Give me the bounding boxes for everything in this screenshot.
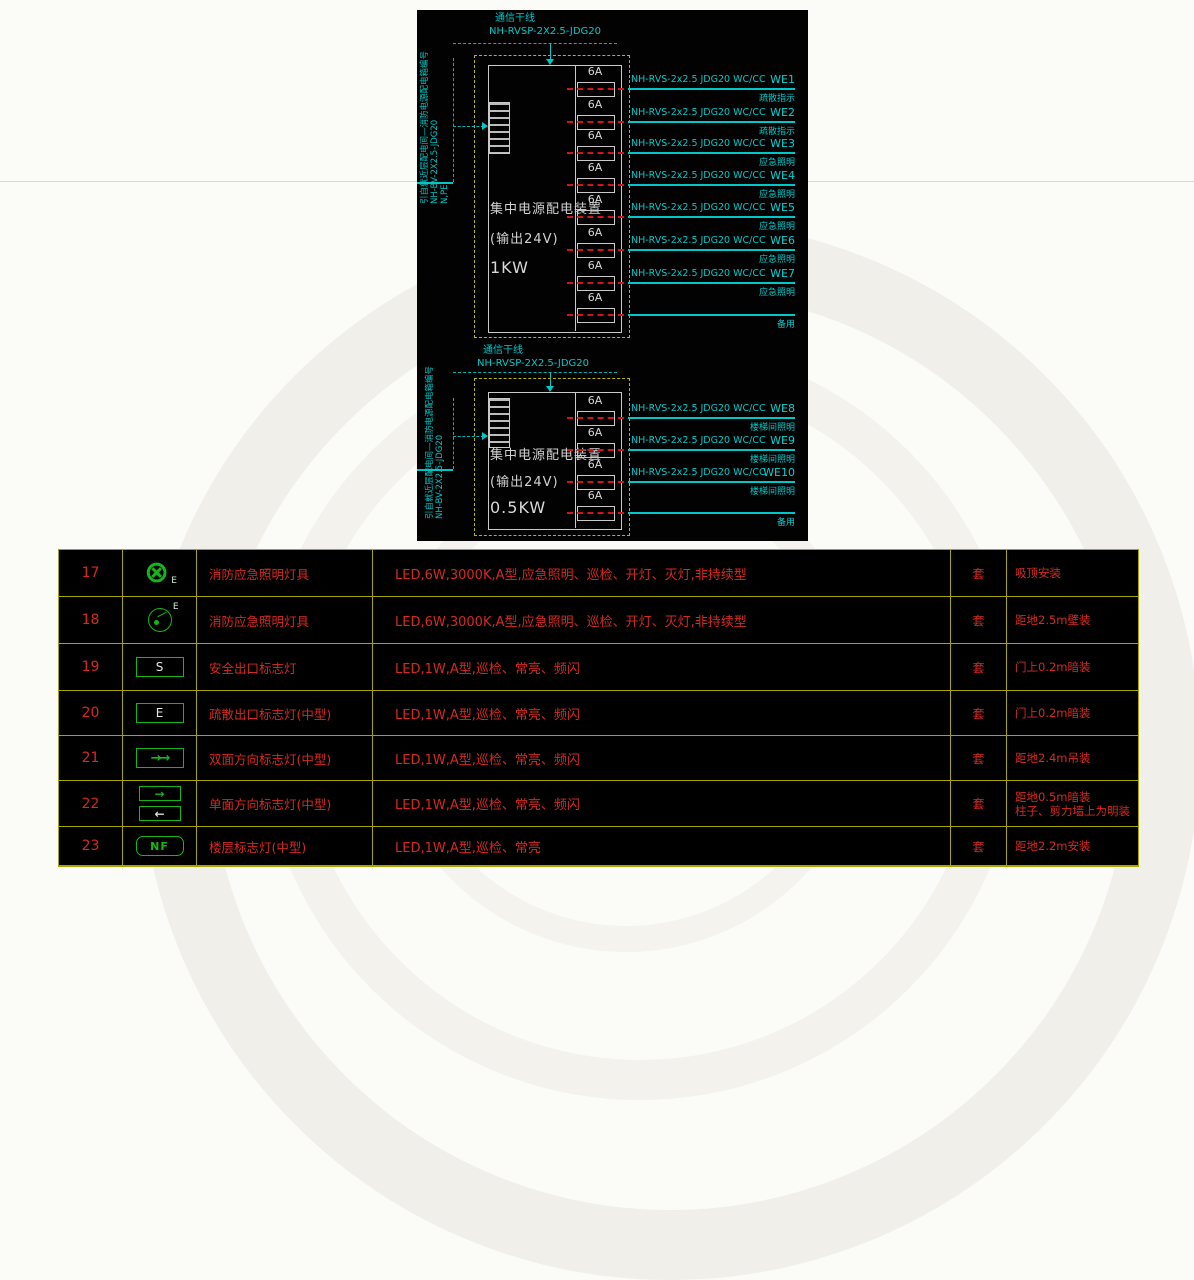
breaker-rating-label: 6A xyxy=(575,129,615,142)
wall-fire-emergency-light-icon-part xyxy=(154,620,159,625)
circuit-wire xyxy=(628,152,795,154)
circuit-wire xyxy=(628,481,795,483)
single-sided-direction-sign-icon-arrow: ← xyxy=(154,809,164,819)
comm-trunk-line xyxy=(453,372,617,373)
single-sided-direction-sign-icon-box: → xyxy=(139,786,181,801)
installation-note: 距地2.5m壁装 xyxy=(1007,597,1136,643)
breaker-rating-label: 6A xyxy=(575,193,615,206)
installation-note: 吸顶安装 xyxy=(1007,550,1136,596)
fixture-spec: LED,1W,A型,巡检、常亮、频闪 xyxy=(373,691,951,735)
fixture-name: 楼层标志灯(中型) xyxy=(197,827,373,865)
row-number: 20 xyxy=(59,691,123,735)
breaker-rating-label: 6A xyxy=(575,394,615,407)
legend-row: 22 →← 单面方向标志灯(中型) LED,1W,A型,巡检、常亮、频闪 套 距… xyxy=(59,781,1138,827)
fixture-name: 双面方向标志灯(中型) xyxy=(197,736,373,780)
circuit-wire xyxy=(628,417,795,419)
fixture-name: 单面方向标志灯(中型) xyxy=(197,781,373,826)
row-number: 17 xyxy=(59,550,123,596)
floor-indicator-sign-icon-text: NF xyxy=(150,840,169,853)
evacuation-exit-sign-icon-letter: E xyxy=(156,707,164,719)
circuit-id-label: WE10 xyxy=(735,466,795,479)
breaker-rating-label: 6A xyxy=(575,291,615,304)
safety-exit-sign-icon-part: S xyxy=(136,657,184,677)
fuse-wire xyxy=(567,121,624,123)
output-circuit: 6A 备用 xyxy=(417,488,808,540)
circuit-wire xyxy=(628,282,795,284)
unit-label: 套 xyxy=(951,736,1007,780)
fuse-wire xyxy=(567,152,624,154)
output-circuit: 6A 备用 xyxy=(417,290,808,342)
comm-trunk-cable-label: NH-RVSP-2X2.5-JDG20 xyxy=(477,357,589,370)
wall-fire-emergency-light-icon-part: E xyxy=(173,602,179,612)
single-sided-direction-sign-icon-arrow: → xyxy=(154,789,164,799)
installation-note: 距地2.4m吊装 xyxy=(1007,736,1136,780)
symbol-cell: →← xyxy=(123,781,197,826)
circuit-wire xyxy=(628,88,795,90)
unit-label: 套 xyxy=(951,550,1007,596)
fixture-spec: LED,1W,A型,巡检、常亮、频闪 xyxy=(373,736,951,780)
circuit-wire xyxy=(628,449,795,451)
legend-table: 17 ⊗E 消防应急照明灯具 LED,6W,3000K,A型,应急照明、巡检、开… xyxy=(58,549,1139,867)
symbol-cell: ⊗E xyxy=(123,550,197,596)
fixture-spec: LED,1W,A型,巡检、常亮、频闪 xyxy=(373,781,951,826)
fuse-wire xyxy=(567,282,624,284)
circuit-function-label: 备用 xyxy=(667,317,795,330)
evacuation-exit-sign-icon: E xyxy=(136,703,184,723)
double-sided-direction-sign-icon-part: →→ xyxy=(136,748,184,768)
breaker-rating-label: 6A xyxy=(575,98,615,111)
single-sided-direction-sign-icon: →← xyxy=(139,786,181,821)
legend-row: 21 →→ 双面方向标志灯(中型) LED,1W,A型,巡检、常亮、频闪 套 距… xyxy=(59,736,1138,781)
ceiling-fire-emergency-light-icon-part: E xyxy=(171,576,177,586)
row-number: 23 xyxy=(59,827,123,865)
circuit-wire xyxy=(628,184,795,186)
floor-indicator-sign-icon: NF xyxy=(136,836,184,856)
fixture-name: 消防应急照明灯具 xyxy=(197,550,373,596)
safety-exit-sign-icon-letter: S xyxy=(156,661,164,673)
wall-fire-emergency-light-icon-part xyxy=(157,612,166,618)
legend-row: 19 S 安全出口标志灯 LED,1W,A型,巡检、常亮、频闪 套 门上0.2m… xyxy=(59,644,1138,691)
circuit-id-label: WE4 xyxy=(735,169,795,182)
circuit-id-label: WE3 xyxy=(735,137,795,150)
circuit-wire xyxy=(628,249,795,251)
ceiling-fire-emergency-light-icon: ⊗E xyxy=(144,559,175,587)
symbol-cell: E xyxy=(123,597,197,643)
wall-fire-emergency-light-icon-part: E xyxy=(148,608,172,632)
fuse-wire xyxy=(567,184,624,186)
floor-indicator-sign-icon-part: NF xyxy=(136,836,184,856)
circuit-id-label: WE2 xyxy=(735,106,795,119)
fuse-wire xyxy=(567,249,624,251)
double-sided-direction-sign-icon: →→ xyxy=(136,748,184,768)
fixture-spec: LED,1W,A型,巡检、常亮 xyxy=(373,827,951,865)
circuit-wire xyxy=(628,121,795,123)
legend-row: 23 NF 楼层标志灯(中型) LED,1W,A型,巡检、常亮 套 距地2.2m… xyxy=(59,827,1138,866)
fuse-wire xyxy=(567,449,624,451)
comm-trunk-label: 通信干线 xyxy=(495,12,535,25)
circuit-id-label: WE5 xyxy=(735,201,795,214)
installation-note: 距地0.5m暗装 柱子、剪力墙上为明装 xyxy=(1007,781,1136,826)
fuse-wire xyxy=(567,88,624,90)
row-number: 18 xyxy=(59,597,123,643)
circuit-wire xyxy=(628,314,795,316)
safety-exit-sign-icon: S xyxy=(136,657,184,677)
breaker-rating-label: 6A xyxy=(575,489,615,502)
breaker-rating-label: 6A xyxy=(575,226,615,239)
single-sided-direction-sign-icon-part: →← xyxy=(139,786,181,821)
wall-fire-emergency-light-icon: E xyxy=(148,608,172,632)
breaker-rating-label: 6A xyxy=(575,458,615,471)
symbol-cell: S xyxy=(123,644,197,690)
fixture-spec: LED,6W,3000K,A型,应急照明、巡检、开灯、灭灯,非持续型 xyxy=(373,597,951,643)
fixture-spec: LED,1W,A型,巡检、常亮、频闪 xyxy=(373,644,951,690)
breaker-rating-label: 6A xyxy=(575,259,615,272)
fuse-wire xyxy=(567,417,624,419)
ceiling-fire-emergency-light-icon-part: ⊗ xyxy=(144,559,169,587)
symbol-cell: NF xyxy=(123,827,197,865)
installation-note: 门上0.2m暗装 xyxy=(1007,691,1136,735)
installation-note: 距地2.2m安装 xyxy=(1007,827,1136,865)
installation-note: 门上0.2m暗装 xyxy=(1007,644,1136,690)
unit-label: 套 xyxy=(951,597,1007,643)
row-number: 22 xyxy=(59,781,123,826)
cad-drawing-canvas: 通信干线NH-RVSP-2X2.5-JDG20集中电源配电装置(输出24V)1K… xyxy=(417,10,808,541)
legend-row: 17 ⊗E 消防应急照明灯具 LED,6W,3000K,A型,应急照明、巡检、开… xyxy=(59,550,1138,597)
row-number: 19 xyxy=(59,644,123,690)
symbol-cell: →→ xyxy=(123,736,197,780)
fuse-wire xyxy=(567,512,624,514)
circuit-wire xyxy=(628,216,795,218)
single-sided-direction-sign-icon-box: ← xyxy=(139,806,181,821)
fuse-wire xyxy=(567,481,624,483)
legend-row: 18 E 消防应急照明灯具 LED,6W,3000K,A型,应急照明、巡检、开灯… xyxy=(59,597,1138,644)
circuit-id-label: WE6 xyxy=(735,234,795,247)
comm-trunk-cable-label: NH-RVSP-2X2.5-JDG20 xyxy=(489,25,601,38)
breaker-rating-label: 6A xyxy=(575,65,615,78)
breaker-rating-label: 6A xyxy=(575,426,615,439)
fixture-name: 安全出口标志灯 xyxy=(197,644,373,690)
circuit-function-label: 备用 xyxy=(667,515,795,528)
unit-label: 套 xyxy=(951,691,1007,735)
evacuation-exit-sign-icon-part: E xyxy=(136,703,184,723)
symbol-cell: E xyxy=(123,691,197,735)
double-sided-direction-sign-icon-arrows: →→ xyxy=(151,752,169,765)
circuit-id-label: WE1 xyxy=(735,73,795,86)
unit-label: 套 xyxy=(951,827,1007,865)
circuit-id-label: WE8 xyxy=(735,402,795,415)
unit-label: 套 xyxy=(951,781,1007,826)
fixture-name: 疏散出口标志灯(中型) xyxy=(197,691,373,735)
fuse-wire xyxy=(567,314,624,316)
unit-label: 套 xyxy=(951,644,1007,690)
circuit-id-label: WE7 xyxy=(735,267,795,280)
legend-row: 20 E 疏散出口标志灯(中型) LED,1W,A型,巡检、常亮、频闪 套 门上… xyxy=(59,691,1138,736)
fixture-name: 消防应急照明灯具 xyxy=(197,597,373,643)
fuse-wire xyxy=(567,216,624,218)
circuit-wire xyxy=(628,512,795,514)
comm-trunk-line xyxy=(453,43,617,44)
row-number: 21 xyxy=(59,736,123,780)
fixture-spec: LED,6W,3000K,A型,应急照明、巡检、开灯、灭灯,非持续型 xyxy=(373,550,951,596)
comm-trunk-label: 通信干线 xyxy=(483,344,523,357)
breaker-rating-label: 6A xyxy=(575,161,615,174)
circuit-id-label: WE9 xyxy=(735,434,795,447)
